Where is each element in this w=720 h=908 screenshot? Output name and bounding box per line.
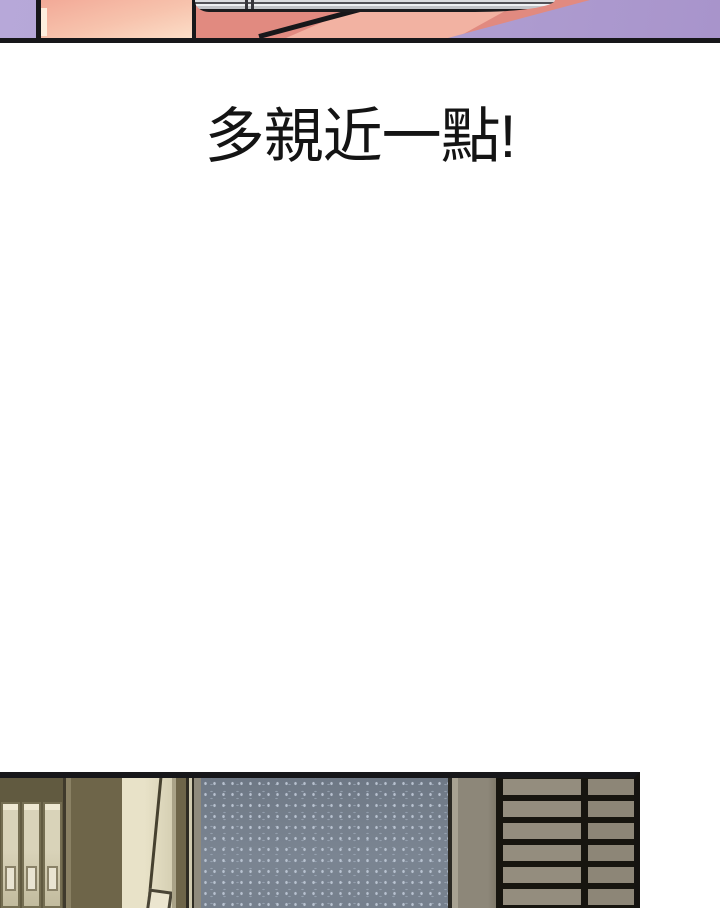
phone-edge-seam bbox=[245, 0, 248, 9]
comic-panel-top bbox=[0, 0, 720, 43]
drawer-grid-left bbox=[503, 778, 581, 908]
binder bbox=[1, 802, 20, 908]
shelf-edge-highlight bbox=[66, 778, 71, 908]
gray-column bbox=[452, 778, 496, 908]
leg bbox=[36, 0, 196, 40]
binder-label bbox=[47, 866, 58, 891]
leg-sheen bbox=[41, 8, 47, 36]
binder bbox=[43, 802, 62, 908]
binder-label bbox=[26, 866, 37, 891]
pillar-shadow bbox=[172, 778, 176, 908]
binder bbox=[22, 802, 41, 908]
door-pillar bbox=[122, 778, 172, 908]
paper-sheet bbox=[145, 888, 173, 908]
phone-edge bbox=[195, 0, 555, 12]
speckled-wall bbox=[201, 778, 448, 908]
binder-label bbox=[5, 866, 16, 891]
comic-page: 多親近一點! bbox=[0, 0, 720, 908]
door-frame-gray bbox=[194, 778, 201, 908]
drawer-grid-right bbox=[588, 778, 634, 908]
thigh-highlight bbox=[286, 10, 516, 38]
narration-caption: 多親近一點! bbox=[0, 104, 720, 170]
phone-edge-seam bbox=[251, 0, 254, 9]
comic-panel-bottom bbox=[0, 772, 640, 908]
